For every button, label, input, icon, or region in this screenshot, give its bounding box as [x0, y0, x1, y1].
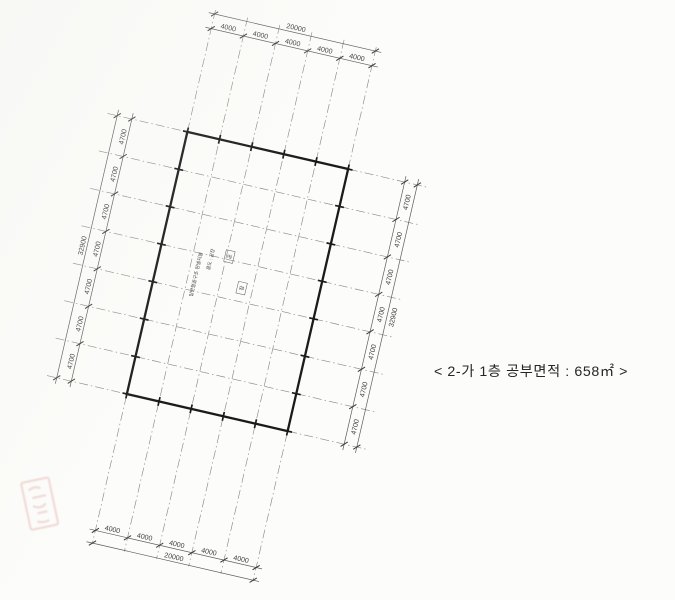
dimension-tick	[120, 153, 127, 160]
dimension-label: 4700	[67, 353, 77, 370]
grid-centerline-horizontal	[90, 188, 412, 262]
dimension-tick	[128, 115, 135, 122]
dimension-tick	[92, 527, 99, 534]
dimension-tick	[124, 534, 131, 541]
grid-centerline-horizontal	[99, 151, 421, 225]
dimension-tick	[188, 549, 195, 556]
building-outline	[121, 126, 353, 436]
center-boxed-label: 장	[236, 281, 247, 295]
drawing-sheet: 4000400040004000400020000400040004000400…	[0, 0, 675, 600]
dimension-tick	[336, 55, 343, 62]
center-boxed-label: 공	[224, 250, 235, 264]
wall-tick	[283, 150, 285, 159]
dimension-tick	[384, 253, 391, 260]
dimension-tick	[358, 366, 365, 373]
wall-tick	[301, 355, 310, 357]
dimension-tick	[250, 577, 257, 584]
dimension-label: 4700	[75, 316, 85, 333]
center-annotations: 일반철골구조 판넬지붕용도 : 공장공장	[187, 243, 253, 308]
dimension-tick	[156, 542, 163, 549]
grid-centerline-vertical	[189, 32, 312, 566]
dimension-tick	[208, 25, 215, 32]
dimension-tick	[341, 441, 348, 448]
dimension-tick	[349, 403, 356, 410]
dimension-tick	[94, 265, 101, 272]
grid-centerline-horizontal	[56, 338, 378, 412]
dimension-tick	[53, 374, 60, 381]
building-outline-rect	[127, 132, 348, 431]
grid-centerlines	[12, 0, 457, 600]
wall-tick	[254, 419, 256, 428]
wall-tick	[174, 168, 183, 170]
dimension-tick	[240, 32, 247, 39]
dimension-label: 4000	[136, 532, 153, 542]
dimension-label: 4700	[110, 166, 120, 183]
center-boxed-label-text: 장	[238, 285, 246, 291]
wall-tick	[219, 135, 221, 144]
dimension-label: 4000	[348, 53, 365, 63]
wall-tick	[251, 142, 253, 151]
stamp-mark	[8, 469, 78, 542]
wall-tick	[283, 430, 292, 432]
center-label-line2: 용도 : 공장	[205, 248, 217, 271]
dimension-label: 4700	[101, 203, 111, 220]
wall-tick	[190, 404, 192, 413]
dimension-tick	[89, 539, 96, 546]
dimension-label: 4700	[377, 306, 387, 323]
dimension-label: 4700	[351, 419, 361, 436]
dimension-tick	[372, 48, 379, 55]
dimension-tick	[368, 62, 375, 69]
dimension-tick	[102, 228, 109, 235]
wall-tick	[131, 356, 140, 358]
floor-plan-drawing: 4000400040004000400020000400040004000400…	[0, 0, 675, 600]
dimension-label: 4000	[200, 547, 217, 557]
dimension-chain-line	[205, 27, 377, 67]
dimension-tick	[414, 181, 421, 188]
dimension-label: 4700	[394, 231, 404, 248]
wall-tick	[318, 280, 327, 282]
dimension-label: 4700	[93, 241, 103, 258]
dimension-tick	[375, 291, 382, 298]
dimension-label: 4000	[316, 46, 333, 56]
dimension-label: 4700	[402, 194, 412, 211]
grid-centerline-vertical	[157, 25, 280, 559]
dimension-label: 4000	[168, 540, 185, 550]
grid-centerline-vertical	[221, 40, 344, 574]
wall-tick	[166, 206, 175, 208]
dimension-chains	[19, 0, 448, 600]
wall-tick	[315, 157, 317, 166]
rotated-plan-group: 4000400040004000400020000400040004000400…	[12, 0, 458, 600]
dimension-tick	[401, 178, 408, 185]
dimension-label: 4000	[233, 555, 250, 565]
wall-tick	[157, 243, 166, 245]
dimension-label: 4700	[385, 269, 395, 286]
dimension-label: 4000	[252, 31, 269, 41]
dimension-tick	[220, 557, 227, 564]
grid-centerline-horizontal	[73, 263, 395, 337]
grid-centerline-horizontal	[64, 301, 386, 375]
grid-centerline-vertical	[124, 18, 247, 552]
dimension-tick	[111, 190, 118, 197]
dimension-chain-line	[355, 179, 418, 453]
dimension-tick	[353, 443, 360, 450]
dimension-label: 4700	[368, 344, 378, 361]
caption: < 2-가 1층 공부면적 : 658㎡ >	[434, 361, 628, 381]
center-label-line1: 일반철골구조 판넬지붕	[187, 251, 204, 297]
wall-tick	[148, 281, 157, 283]
dimension-tick	[253, 564, 260, 571]
wall-tick	[183, 131, 192, 133]
wall-tick	[326, 243, 335, 245]
dimension-label: 4000	[220, 23, 237, 33]
dimension-tick	[392, 216, 399, 223]
dimension-chain-line	[55, 110, 118, 384]
center-boxed-label-text: 공	[226, 253, 234, 259]
dimension-tick	[68, 378, 75, 385]
dimension-label: 4700	[84, 278, 94, 295]
dimension-label: 4000	[284, 38, 301, 48]
dimension-total-label: 32900	[388, 307, 399, 328]
dimension-tick	[85, 303, 92, 310]
wall-tick	[222, 412, 224, 421]
wall-tick	[335, 205, 344, 207]
dimension-chain-line	[90, 529, 262, 569]
dimension-tick	[76, 340, 83, 347]
dimension-tick	[272, 40, 279, 47]
dimension-tick	[211, 10, 218, 17]
dimension-label: 4700	[359, 381, 369, 398]
dimension-label: 4700	[118, 128, 128, 145]
dimension-label: 4000	[104, 525, 121, 535]
wall-tick	[140, 318, 149, 320]
dimension-tick	[304, 47, 311, 54]
wall-tick	[122, 393, 131, 395]
dimension-tick	[366, 328, 373, 335]
dimension-tick	[114, 112, 121, 119]
wall-tick	[309, 318, 318, 320]
wall-tick	[292, 393, 301, 395]
wall-tick	[158, 397, 160, 406]
wall-tick	[344, 168, 353, 170]
